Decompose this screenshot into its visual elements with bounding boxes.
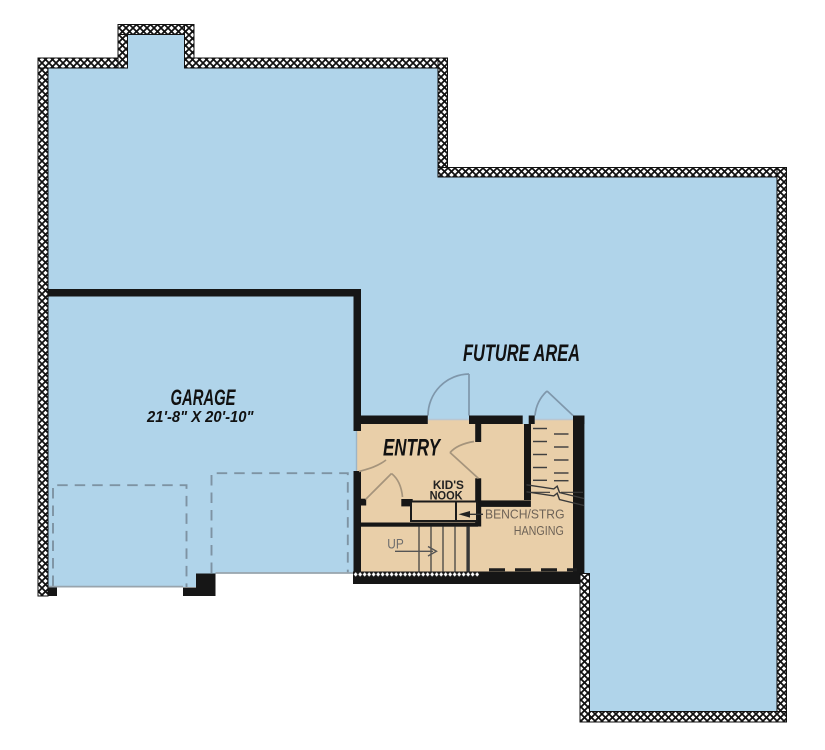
svg-text:HANGING: HANGING [514, 524, 564, 538]
svg-text:GARAGE: GARAGE [171, 385, 237, 410]
svg-text:ENTRY: ENTRY [383, 435, 441, 462]
svg-text:UP: UP [387, 537, 404, 552]
svg-text:21'-8" X 20'-10": 21'-8" X 20'-10" [146, 409, 254, 426]
svg-text:FUTURE AREA: FUTURE AREA [463, 340, 580, 367]
svg-text:BENCH/STRG: BENCH/STRG [485, 508, 565, 522]
svg-text:NOOK: NOOK [430, 491, 464, 503]
